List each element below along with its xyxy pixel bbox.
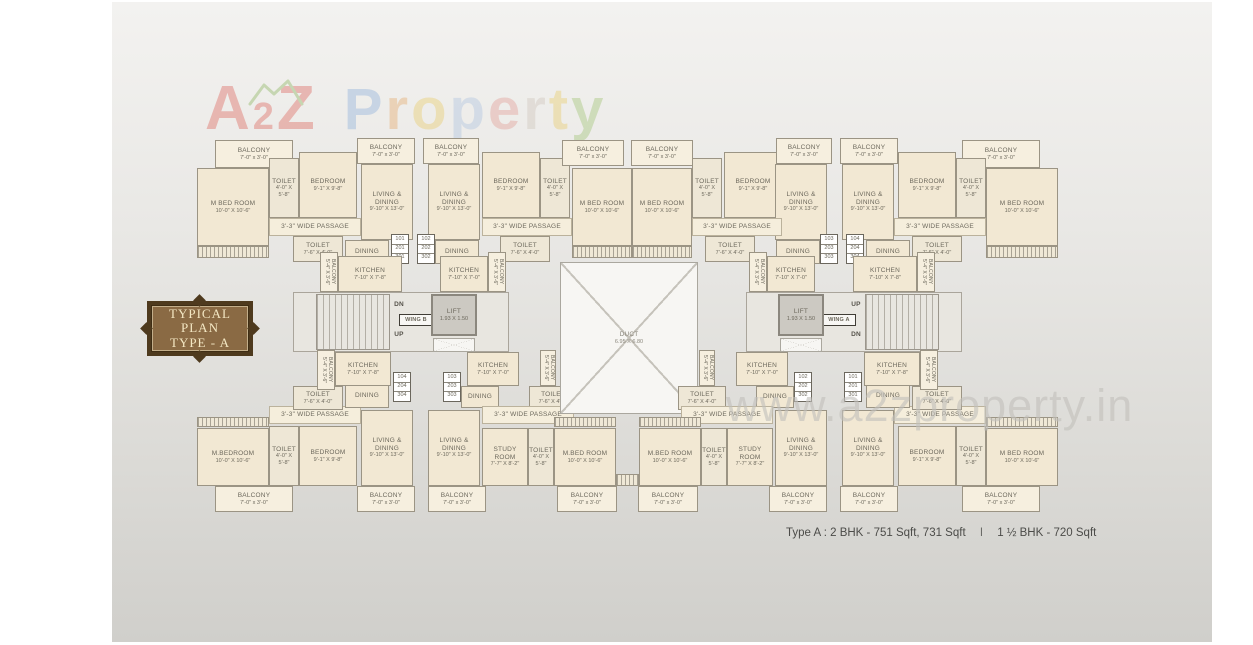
staircase (316, 294, 390, 350)
kitchen: KITCHEN7'-10" X 7'-8" (338, 256, 402, 292)
page: A2ZProperty www.a2zproperty.in TYPICAL P… (0, 0, 1253, 645)
balcony: BALCONY7'-0" x 3'-0" (638, 486, 698, 512)
logo-letter: P (344, 81, 386, 139)
toilet: TOILET4'-0" X 5'-8" (956, 426, 986, 486)
living-dining: LIVING & DINING9'-10" X 13'-0" (428, 410, 480, 486)
lift-shaft (433, 338, 475, 352)
balcony: BALCONY7'-0" x 3'-0" (840, 486, 898, 512)
bedroom: BEDROOM9'-1" X 9'-8" (299, 152, 357, 218)
m-bed-room: M BED ROOM10'-0" X 10'-6" (986, 428, 1058, 486)
window-strip (986, 417, 1058, 427)
flat-numbers: 103203303 (443, 372, 461, 402)
flat-numbers: 102202302 (417, 234, 435, 264)
window-strip (197, 417, 269, 427)
living-dining: LIVING & DINING9'-10" X 13'-0" (428, 164, 480, 240)
logo-letter: t (549, 81, 571, 139)
living-dining: LIVING & DINING9'-10" X 13'-0" (842, 164, 894, 240)
m-bed-room: M BED ROOM10'-0" X 10'-6" (632, 168, 692, 246)
window-strip (616, 474, 639, 486)
toilet: TOILET4'-0" X 5'-8" (269, 158, 299, 218)
balcony: BALCONY7'-0" x 3'-0" (840, 138, 898, 164)
flat-numbers: 103203303 (820, 234, 838, 264)
staircase (865, 294, 939, 350)
plan-caption: Type A : 2 BHK - 751 Sqft, 731 Sqft I 1 … (786, 527, 1096, 539)
passage: 3'-3" WIDE PASSAGE (482, 218, 572, 236)
balcony: BALCONY5'-4" X 3'-6" (920, 350, 938, 390)
stairs-label: UP (390, 330, 408, 340)
stairs-label: DN (390, 300, 408, 310)
balcony: BALCONY5'-4" X 3'-6" (488, 252, 506, 292)
passage: 3'-3" WIDE PASSAGE (269, 218, 361, 236)
balcony: BALCONY7'-0" x 3'-0" (428, 486, 486, 512)
a2z-property-logo: A2ZProperty (205, 78, 606, 140)
toilet: TOILET7'-6" X 4'-0" (500, 236, 550, 262)
flat-numbers: 104204304 (393, 372, 411, 402)
bedroom: BEDROOM9'-1" X 9'-8" (482, 152, 540, 218)
stairs-label: DN (847, 330, 865, 340)
logo-letter: r (385, 81, 411, 139)
bedroom: BEDROOM9'-1" X 9'-8" (724, 152, 782, 218)
balcony: BALCONY7'-0" x 3'-0" (215, 486, 293, 512)
badge-line-2: PLAN (181, 321, 219, 335)
toilet: TOILET7'-6" X 4'-0" (705, 236, 755, 262)
badge-line-3: TYPE - A (170, 336, 230, 350)
kitchen: KITCHEN7'-10" X 7'-8" (853, 256, 917, 292)
window-strip (572, 246, 632, 258)
window-strip (554, 417, 616, 427)
caption-left: Type A : 2 BHK - 751 Sqft, 731 Sqft (786, 527, 966, 539)
flat-numbers: 101201301 (844, 372, 862, 402)
living-dining: LIVING & DINING9'-10" X 13'-0" (842, 410, 894, 486)
house-icon (247, 78, 305, 106)
flat-numbers: 102202302 (794, 372, 812, 402)
floor-plan: BALCONY7'-0" x 3'-0"M BED ROOM10'-0" X 1… (195, 138, 1063, 513)
stairs-label: UP (847, 300, 865, 310)
balcony: BALCONY5'-4" X 3'-6" (699, 350, 715, 386)
logo-letter: A (205, 78, 253, 140)
wing-label: WING A (822, 314, 856, 326)
toilet: TOILET4'-0" X 5'-8" (701, 428, 727, 486)
balcony: BALCONY7'-0" x 3'-0" (423, 138, 479, 164)
balcony: BALCONY7'-0" x 3'-0" (962, 486, 1040, 512)
study-room: STUDY ROOM7'-7" X 8'-2" (482, 428, 528, 486)
lift: LIFT1.93 X 1.50 (778, 294, 824, 336)
toilet: TOILET4'-0" X 5'-8" (528, 428, 554, 486)
kitchen: KITCHEN7'-10" X 7'-8" (864, 352, 920, 386)
balcony: BALCONY7'-0" x 3'-0" (631, 140, 693, 166)
badge-line-1: TYPICAL (169, 307, 231, 321)
dining: DINING (345, 384, 389, 408)
balcony: BALCONY5'-4" X 3'-6" (917, 252, 935, 292)
balcony: BALCONY7'-0" x 3'-0" (562, 140, 624, 166)
balcony: BALCONY7'-0" x 3'-0" (357, 138, 415, 164)
m-bed-room: M.BED ROOM10'-0" X 10'-6" (554, 428, 616, 486)
balcony: BALCONY7'-0" x 3'-0" (357, 486, 415, 512)
living-dining: LIVING & DINING9'-10" X 13'-0" (775, 164, 827, 240)
dining: DINING (866, 384, 910, 408)
m-bed-room: M.BEDROOM10'-0" X 10'-6" (197, 428, 269, 486)
logo-letter: r (523, 81, 549, 139)
caption-right: 1 ½ BHK - 720 Sqft (997, 527, 1096, 539)
m-bed-room: M BED ROOM10'-0" X 10'-6" (572, 168, 632, 246)
balcony: BALCONY5'-4" X 3'-6" (540, 350, 556, 386)
logo-letter: o (411, 81, 449, 139)
lift: LIFT1.93 X 1.50 (431, 294, 477, 336)
dining: DINING (756, 386, 794, 408)
living-dining: LIVING & DINING9'-10" X 13'-0" (775, 410, 827, 486)
toilet: TOILET4'-0" X 5'-8" (540, 158, 570, 218)
kitchen: KITCHEN7'-10" X 7'-0" (467, 352, 519, 386)
study-room: STUDY ROOM7'-7" X 8'-2" (727, 428, 773, 486)
passage: 3'-3" WIDE PASSAGE (894, 218, 986, 236)
m-bed-room: M BED ROOM10'-0" X 10'-6" (986, 168, 1058, 246)
kitchen: KITCHEN7'-10" X 7'-8" (335, 352, 391, 386)
caption-separator: I (980, 527, 983, 539)
passage: 3'-3" WIDE PASSAGE (692, 218, 782, 236)
balcony: BALCONY5'-4" X 3'-6" (749, 252, 767, 292)
living-dining: LIVING & DINING9'-10" X 13'-0" (361, 410, 413, 486)
balcony: BALCONY5'-4" X 3'-6" (320, 252, 338, 292)
toilet: TOILET4'-0" X 5'-8" (269, 426, 299, 486)
window-strip (632, 246, 692, 258)
bedroom: BEDROOM9'-1" X 9'-8" (299, 426, 357, 486)
window-strip (986, 246, 1058, 258)
wing-label: WING B (399, 314, 433, 326)
lift-shaft (780, 338, 822, 352)
balcony: BALCONY5'-4" X 3'-6" (317, 350, 335, 390)
kitchen: KITCHEN7'-10" X 7'-0" (767, 256, 815, 292)
toilet: TOILET4'-0" X 5'-8" (956, 158, 986, 218)
logo-letter: e (488, 81, 523, 139)
m-bed-room: M BED ROOM10'-0" X 10'-6" (197, 168, 269, 246)
bedroom: BEDROOM9'-1" X 9'-8" (898, 426, 956, 486)
m-bed-room: M.BED ROOM10'-0" X 10'-6" (639, 428, 701, 486)
balcony: BALCONY7'-0" x 3'-0" (557, 486, 617, 512)
dining: DINING (461, 386, 499, 408)
toilet: TOILET4'-0" X 5'-8" (692, 158, 722, 218)
bedroom: BEDROOM9'-1" X 9'-8" (898, 152, 956, 218)
logo-letter: p (450, 81, 488, 139)
logo-letter: y (571, 81, 606, 139)
kitchen: KITCHEN7'-10" X 7'-0" (736, 352, 788, 386)
plan-title-badge: TYPICAL PLAN TYPE - A (147, 301, 253, 356)
kitchen: KITCHEN7'-10" X 7'-0" (440, 256, 488, 292)
living-dining: LIVING & DINING9'-10" X 13'-0" (361, 164, 413, 240)
balcony: BALCONY7'-0" x 3'-0" (769, 486, 827, 512)
window-strip (639, 417, 701, 427)
window-strip (197, 246, 269, 258)
balcony: BALCONY7'-0" x 3'-0" (776, 138, 832, 164)
